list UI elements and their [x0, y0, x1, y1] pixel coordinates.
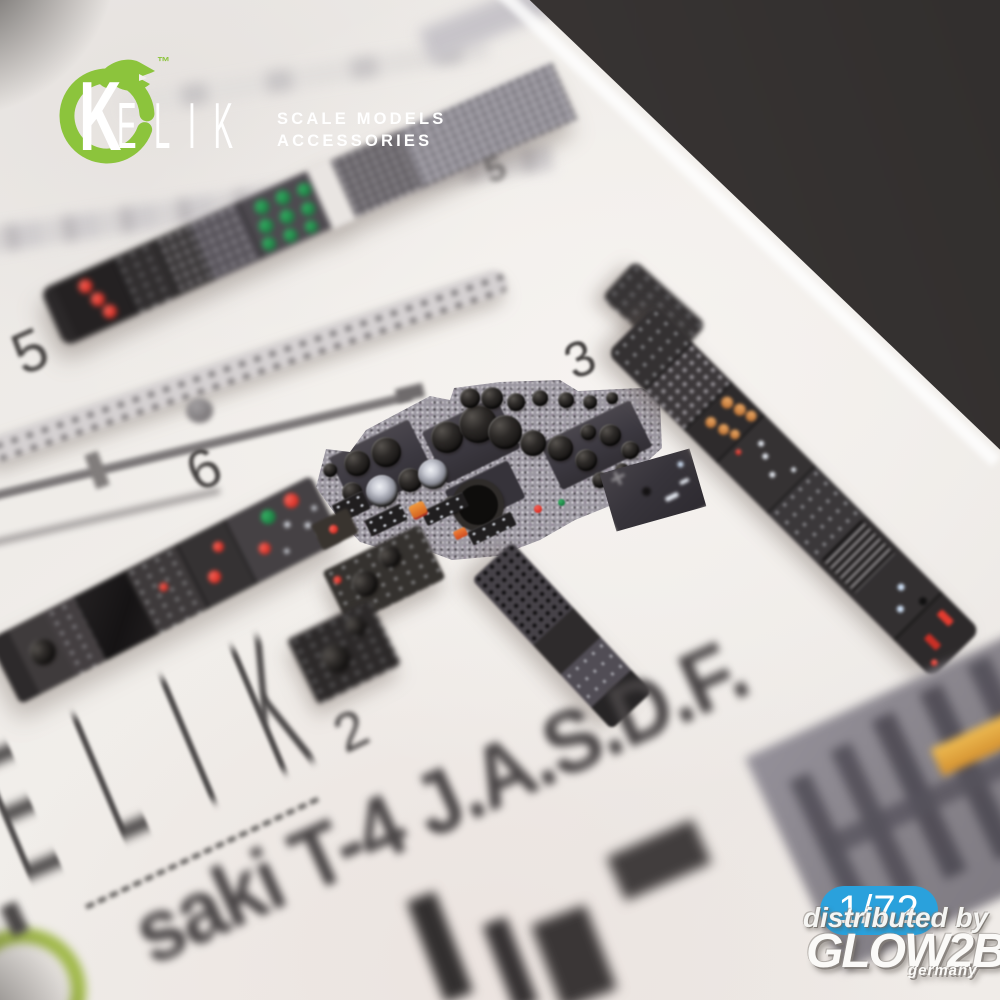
tagline-line1: SCALE MODELS: [277, 108, 447, 130]
scale-badge: 1/72: [820, 886, 938, 935]
vignette-bottom-left: [0, 700, 300, 1000]
center-console-strip: [472, 542, 652, 729]
distributor-country-text: germany: [908, 962, 978, 979]
logo-tagline: SCALE MODELS ACCESSORIES: [277, 108, 447, 152]
part-number-3: 3: [555, 327, 604, 391]
photoetch-strip-6: [0, 476, 343, 704]
tagline-line2: ACCESSORIES: [277, 130, 447, 152]
logo-letter-k: K: [79, 60, 121, 173]
thin-rod-hook: [395, 383, 426, 403]
part-number-5: 5: [2, 314, 59, 388]
main-panel-lowest-block: [287, 599, 401, 704]
printed-subject-title: saki T-4 J.A.S.D.F.: [118, 618, 761, 985]
printed-letter-blob: [606, 819, 711, 901]
printed-letter-blob: [531, 905, 617, 1000]
printed-green-logo-partial: [0, 928, 86, 1000]
strip-fastener-bump: [186, 398, 213, 423]
part-number-2: 2: [324, 697, 378, 766]
logo-letters-elik: ELIK: [117, 88, 251, 163]
scale-badge-text: 1/72: [838, 888, 920, 932]
orange-knob-2: [453, 527, 469, 541]
printed-mark-blob: [0, 901, 29, 937]
printed-letter-blob: [407, 891, 474, 1000]
printed-fine-print-line: [85, 796, 321, 910]
printed-letter-blob: [482, 917, 538, 1000]
brand-logo-overlay: K ™ ELIK SCALE MODELS ACCESSORIES: [55, 52, 455, 192]
product-photo-cockpit-decal-sheet: 5 5 6: [0, 0, 1000, 1000]
orange-stripe-piece: [931, 714, 1000, 777]
